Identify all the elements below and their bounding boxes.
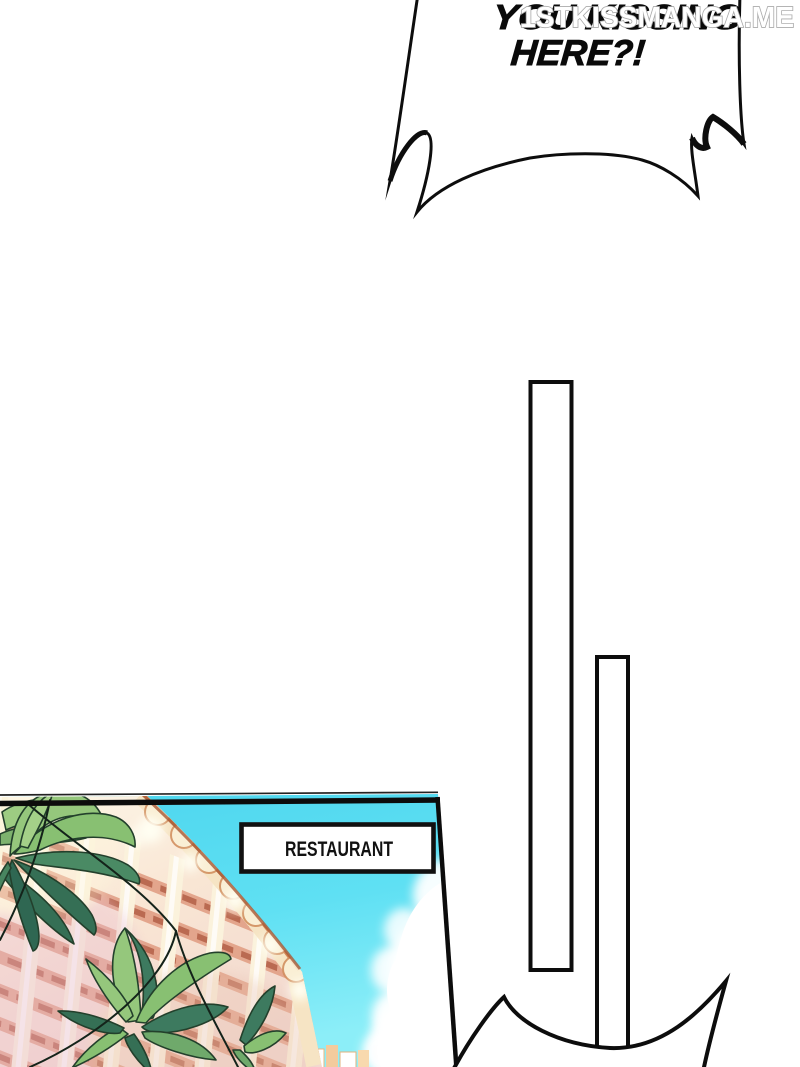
svg-text:HERE?!: HERE?! <box>509 32 647 73</box>
svg-text:RESTAURANT: RESTAURANT <box>285 838 393 861</box>
svg-text:1STKISSMANGA.ME: 1STKISSMANGA.ME <box>520 2 794 34</box>
